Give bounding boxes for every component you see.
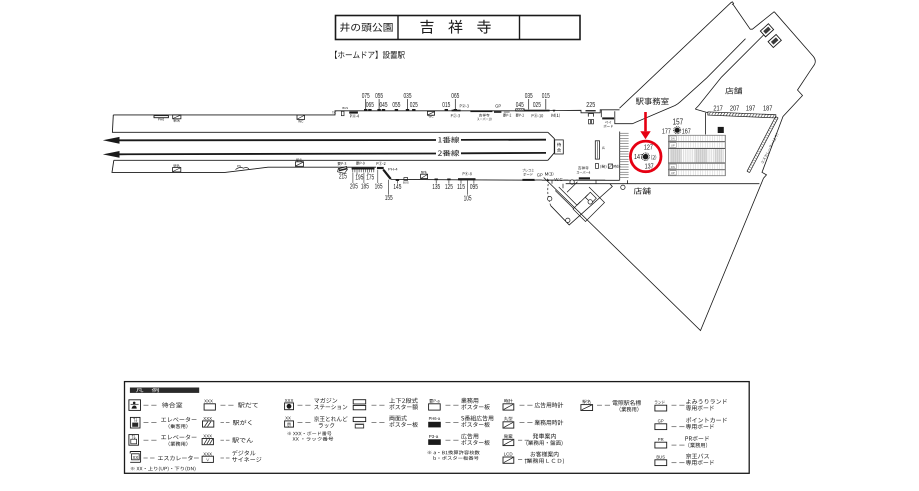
svg-text:GP: GP — [658, 418, 664, 423]
svg-text:045: 045 — [380, 100, 388, 109]
svg-text:157: 157 — [673, 117, 684, 126]
svg-text:167: 167 — [682, 127, 691, 136]
svg-text:035: 035 — [404, 91, 412, 100]
svg-text:PR: PR — [658, 437, 664, 442]
svg-text:XXX: XXX — [203, 416, 212, 421]
svg-text:055: 055 — [392, 100, 400, 109]
svg-text:GP: GP — [495, 104, 501, 109]
svg-text:XXX: XXX — [285, 398, 294, 403]
svg-text:XXX: XXX — [203, 451, 212, 456]
svg-text:225: 225 — [586, 100, 595, 109]
svg-text:175: 175 — [366, 173, 374, 182]
svg-text:195: 195 — [355, 173, 363, 182]
svg-text:025: 025 — [410, 100, 418, 109]
svg-text:025: 025 — [533, 100, 541, 109]
svg-text:PH-4: PH-4 — [388, 167, 398, 172]
svg-text:165: 165 — [375, 182, 383, 191]
svg-text:BUS: BUS — [403, 180, 409, 184]
svg-text:UP: UP — [671, 143, 675, 147]
svg-text:215: 215 — [339, 172, 347, 181]
svg-text:BUS: BUS — [656, 454, 665, 459]
svg-text:177: 177 — [662, 127, 671, 136]
svg-text:065: 065 — [451, 91, 459, 100]
svg-text:PH6: PH6 — [158, 118, 164, 122]
svg-text:205: 205 — [350, 182, 358, 191]
svg-text:DN: DN — [671, 137, 675, 141]
svg-text:207: 207 — [730, 103, 740, 112]
svg-text:187: 187 — [763, 103, 773, 112]
svg-text:055: 055 — [375, 91, 383, 100]
svg-text:LCD: LCD — [504, 452, 513, 457]
svg-text:UP: UP — [671, 171, 675, 175]
svg-text:147: 147 — [634, 152, 643, 161]
svg-text:035: 035 — [525, 91, 533, 100]
svg-text:XX: XX — [285, 416, 291, 421]
svg-text:DN: DN — [671, 165, 675, 169]
svg-text:PS: PS — [237, 164, 241, 168]
svg-text:015: 015 — [542, 91, 550, 100]
svg-text:015: 015 — [442, 100, 450, 109]
svg-text:BUS: BUS — [342, 106, 348, 110]
svg-text:075: 075 — [362, 91, 370, 100]
svg-text:065: 065 — [366, 100, 374, 109]
svg-text:185: 185 — [361, 182, 369, 191]
svg-text:XXX: XXX — [204, 399, 213, 404]
svg-text:217: 217 — [713, 103, 723, 112]
svg-text:XXX: XXX — [203, 434, 212, 439]
svg-text:127: 127 — [644, 142, 653, 151]
svg-text:XX: XX — [132, 455, 138, 460]
svg-text:W.C: W.C — [554, 177, 563, 182]
svg-text:137: 137 — [645, 162, 654, 171]
svg-text:WC: WC — [298, 119, 304, 123]
svg-text:PH6-a: PH6-a — [429, 416, 441, 421]
svg-text:P3-a: P3-a — [429, 434, 439, 439]
svg-text:197: 197 — [746, 103, 756, 112]
svg-text:045: 045 — [516, 100, 524, 109]
svg-text:GP: GP — [537, 172, 543, 177]
svg-text:WC: WC — [429, 115, 435, 119]
